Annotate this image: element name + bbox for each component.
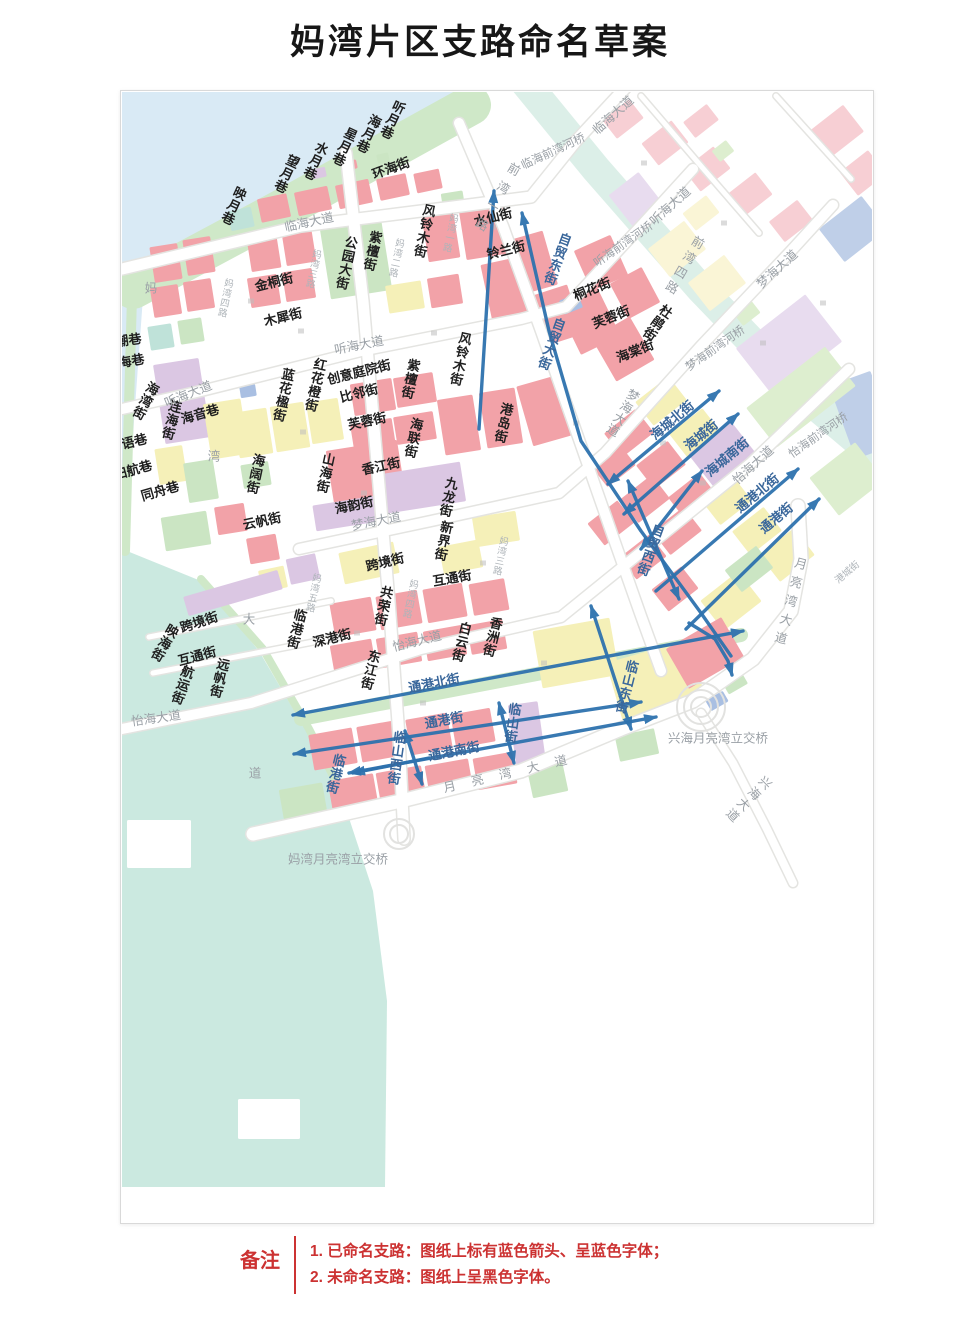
road-label: 妈	[145, 281, 158, 295]
city-block	[147, 323, 174, 350]
building-mark	[480, 561, 486, 566]
city-block	[413, 169, 443, 194]
building-mark	[298, 329, 304, 334]
road-label: 兴海月亮湾立交桥	[668, 730, 769, 745]
city-block	[183, 459, 219, 503]
city-block	[422, 583, 467, 623]
building-mark	[431, 331, 437, 336]
street-label-unnamed: 观海巷	[104, 351, 146, 373]
map-panel: 映月巷望月巷水月巷星月巷海月巷听月巷环海街金桐街木犀街公园大街紫檀街风铃木街水仙…	[120, 90, 874, 1224]
building-mark	[541, 661, 547, 666]
road-label: 妈湾四路	[217, 277, 236, 320]
road-label: 妈湾二路	[388, 237, 407, 280]
city-block	[468, 578, 509, 616]
note-line-1: 1. 已命名支路：图纸上标有蓝色箭头、呈蓝色字体；	[310, 1239, 668, 1265]
building-mark	[300, 430, 306, 435]
city-block	[385, 280, 425, 313]
building-mark	[420, 701, 426, 706]
city-block	[725, 172, 772, 217]
city-block	[437, 395, 481, 456]
road-label: 道	[249, 766, 262, 780]
road-label: 梦海大道	[753, 246, 801, 291]
city-block	[127, 820, 191, 868]
building-mark	[820, 301, 826, 306]
city-block	[238, 1099, 300, 1139]
city-block	[233, 408, 274, 459]
building-mark	[700, 481, 706, 486]
note-lines: 1. 已命名支路：图纸上标有蓝色箭头、呈蓝色字体； 2. 未命名支路：图纸上呈黑…	[294, 1236, 668, 1294]
building-mark	[760, 341, 766, 346]
building-mark	[721, 221, 727, 226]
road-label: 大	[243, 612, 256, 626]
city-block	[809, 442, 884, 516]
city-block	[246, 534, 280, 565]
street-label-unnamed: 互通街	[431, 567, 472, 589]
street-label-unnamed: 木犀街	[261, 305, 303, 329]
note-label: 备注	[240, 1236, 294, 1294]
building-mark	[354, 631, 360, 636]
city-block	[682, 195, 719, 231]
note-block: 备注 1. 已命名支路：图纸上标有蓝色箭头、呈蓝色字体； 2. 未命名支路：图纸…	[240, 1236, 668, 1294]
building-mark	[248, 299, 254, 304]
road-label: 港城街	[832, 558, 862, 586]
city-block	[427, 274, 463, 309]
map-canvas: 映月巷望月巷水月巷星月巷海月巷听月巷环海街金桐街木犀街公园大街紫檀街风铃木街水仙…	[1, 1, 960, 1334]
city-block	[161, 511, 212, 552]
city-block	[683, 104, 719, 138]
city-block	[810, 105, 864, 158]
city-block	[183, 278, 215, 312]
city-block	[177, 317, 204, 344]
city-block	[154, 445, 187, 485]
road-label: 湾	[208, 448, 221, 463]
road-label: 妈湾月亮湾立交桥	[288, 851, 389, 866]
street-label-unnamed: 云帆街	[241, 510, 282, 533]
note-line-2: 2. 未命名支路：图纸上呈黑色字体。	[310, 1265, 668, 1291]
building-mark	[641, 161, 647, 166]
street-label-unnamed: 归航巷	[112, 457, 155, 482]
